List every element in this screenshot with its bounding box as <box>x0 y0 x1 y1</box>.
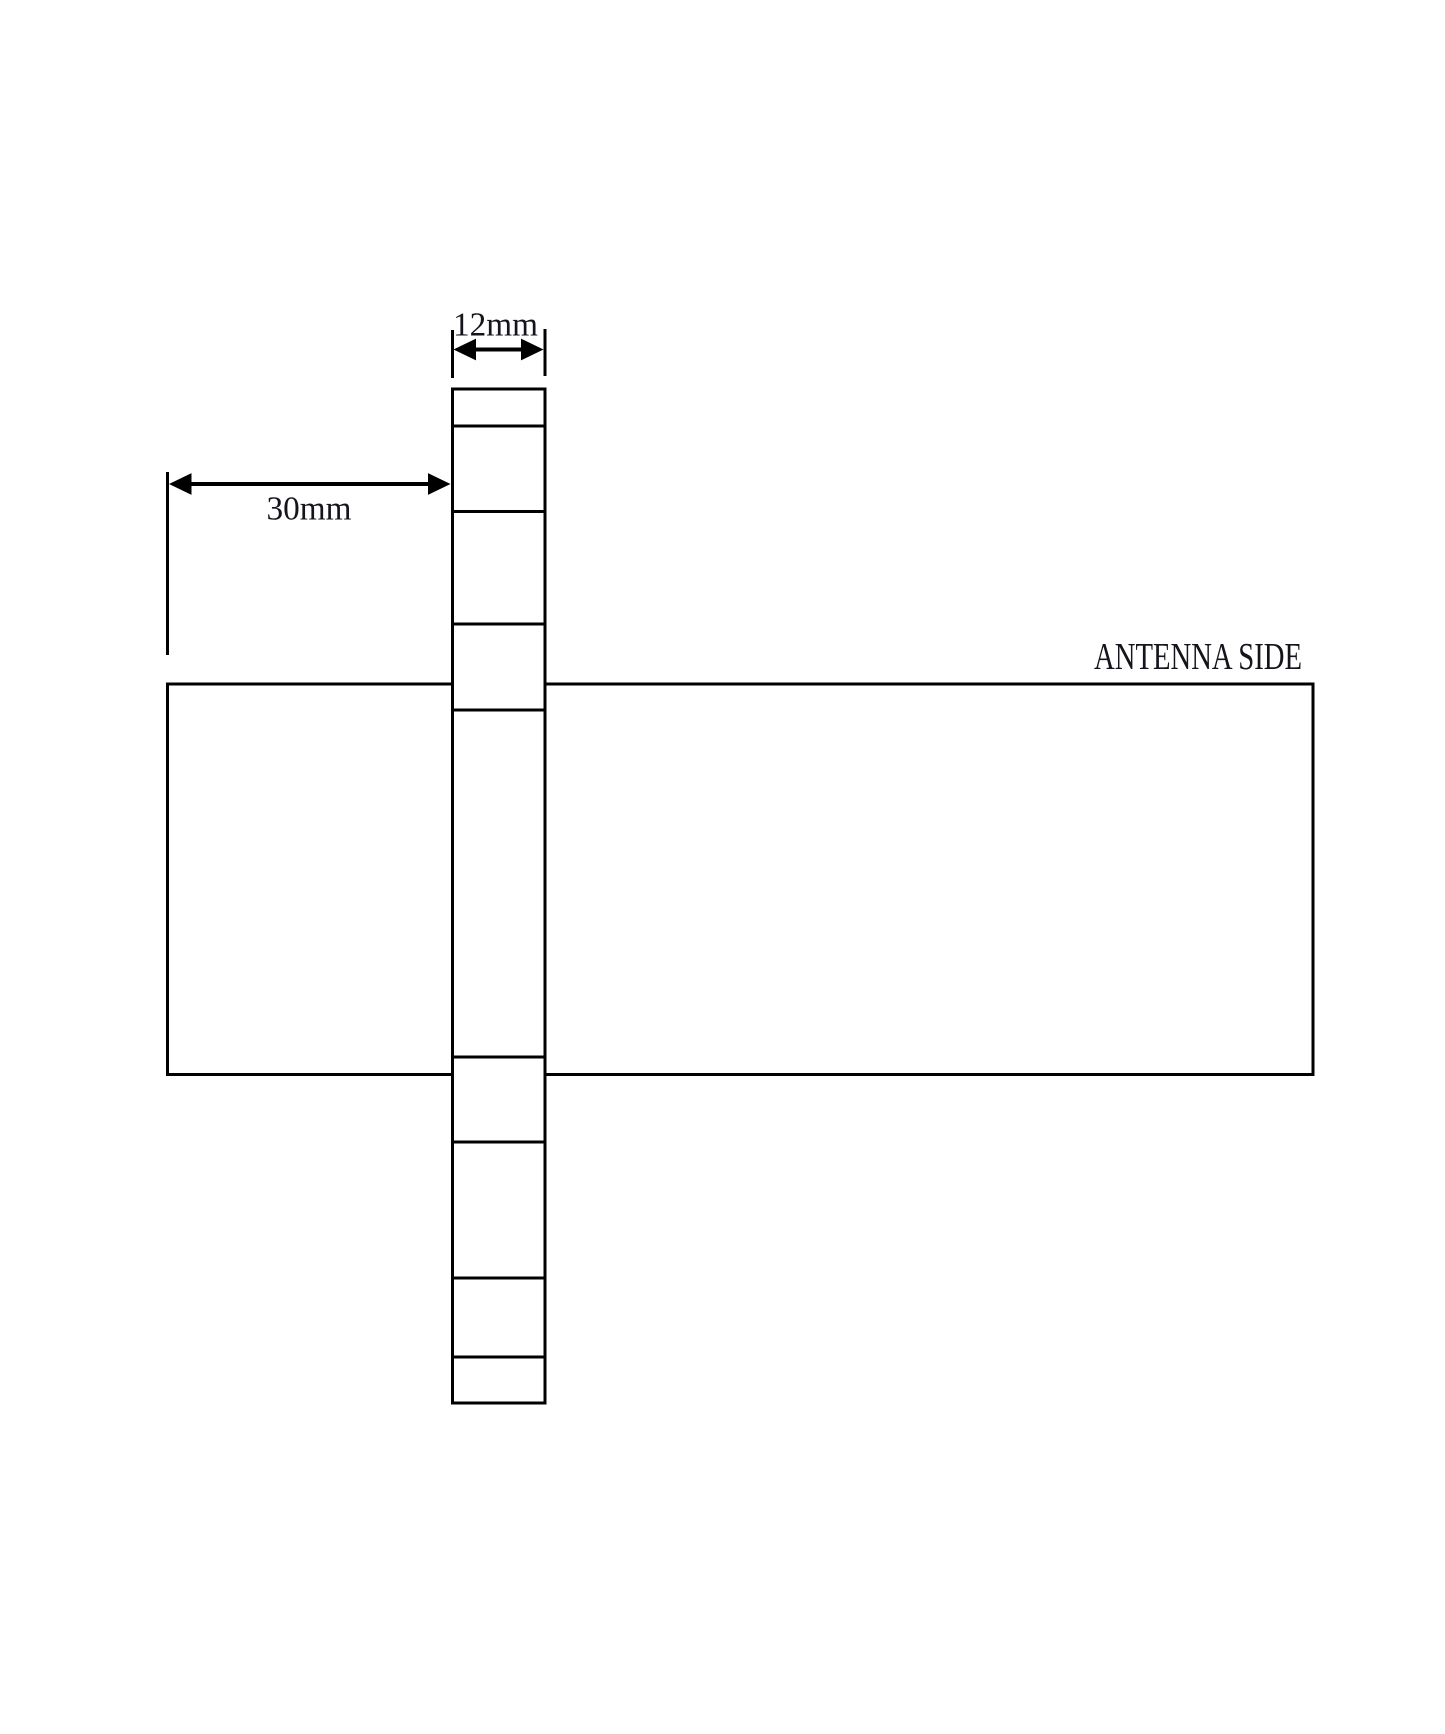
svg-text:12mm: 12mm <box>453 306 538 343</box>
svg-text:30mm: 30mm <box>267 490 352 527</box>
svg-text:ANTENNA SIDE: ANTENNA SIDE <box>1094 636 1302 678</box>
